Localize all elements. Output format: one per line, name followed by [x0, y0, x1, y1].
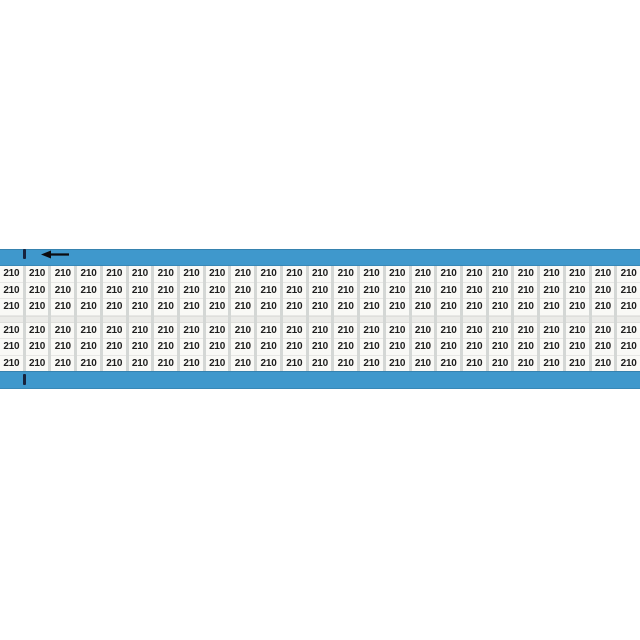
- wire-marker-label: 210: [514, 299, 537, 316]
- wire-marker-label: 210: [463, 283, 486, 300]
- marker-column: 210210210210210210: [412, 266, 435, 371]
- score-line-gap: [489, 316, 512, 323]
- tape-bottom-band: [0, 371, 640, 389]
- wire-marker-label: 210: [566, 356, 589, 372]
- wire-marker-label: 210: [489, 339, 512, 356]
- wire-marker-label: 210: [231, 283, 254, 300]
- wire-marker-label: 210: [617, 339, 640, 356]
- wire-marker-label: 210: [514, 339, 537, 356]
- marker-column: 210210210210210210: [257, 266, 280, 371]
- wire-marker-label: 210: [283, 339, 306, 356]
- marker-column: 210210210210210210: [26, 266, 49, 371]
- marker-column: 210210210210210210: [360, 266, 383, 371]
- score-line-gap: [129, 316, 152, 323]
- marker-column: 210210210210210210: [180, 266, 203, 371]
- wire-marker-label: 210: [103, 283, 126, 300]
- wire-marker-label: 210: [617, 356, 640, 372]
- wire-marker-label: 210: [283, 299, 306, 316]
- wire-marker-label: 210: [540, 283, 563, 300]
- wire-marker-label: 210: [360, 266, 383, 283]
- wire-marker-label: 210: [283, 356, 306, 372]
- score-line-gap: [231, 316, 254, 323]
- marker-column: 210210210210210210: [514, 266, 537, 371]
- wire-marker-label: 210: [231, 266, 254, 283]
- score-line-gap: [592, 316, 615, 323]
- wire-marker-label: 210: [180, 266, 203, 283]
- wire-marker-label: 210: [0, 266, 23, 283]
- registration-tick-top: [23, 249, 26, 259]
- wire-marker-label: 210: [180, 323, 203, 340]
- wire-marker-label: 210: [0, 283, 23, 300]
- wire-marker-label: 210: [386, 356, 409, 372]
- wire-marker-label: 210: [77, 299, 100, 316]
- wire-marker-label: 210: [309, 323, 332, 340]
- wire-marker-label: 210: [489, 356, 512, 372]
- marker-column: 210210210210210210: [77, 266, 100, 371]
- wire-marker-label: 210: [26, 339, 49, 356]
- wire-marker-label: 210: [489, 283, 512, 300]
- wire-marker-label: 210: [51, 339, 74, 356]
- wire-marker-label: 210: [206, 266, 229, 283]
- score-line-gap: [77, 316, 100, 323]
- wire-marker-label: 210: [412, 339, 435, 356]
- wire-marker-label: 210: [540, 323, 563, 340]
- score-line-gap: [412, 316, 435, 323]
- score-line-gap: [463, 316, 486, 323]
- wire-marker-label: 210: [103, 356, 126, 372]
- score-line-gap: [283, 316, 306, 323]
- wire-marker-label: 210: [154, 299, 177, 316]
- registration-tick-bottom: [23, 374, 26, 385]
- wire-marker-label: 210: [540, 299, 563, 316]
- marker-column: 210210210210210210: [206, 266, 229, 371]
- wire-marker-label: 210: [463, 299, 486, 316]
- wire-marker-label: 210: [309, 356, 332, 372]
- wire-marker-label: 210: [103, 266, 126, 283]
- marker-column: 210210210210210210: [129, 266, 152, 371]
- wire-marker-label: 210: [129, 323, 152, 340]
- wire-marker-label: 210: [360, 299, 383, 316]
- score-line-gap: [0, 316, 23, 323]
- wire-marker-label: 210: [489, 323, 512, 340]
- wire-marker-label: 210: [309, 283, 332, 300]
- wire-marker-label: 210: [566, 266, 589, 283]
- wire-marker-label: 210: [51, 299, 74, 316]
- score-line-gap: [437, 316, 460, 323]
- left-arrow-icon: [40, 249, 70, 260]
- wire-marker-label: 210: [26, 299, 49, 316]
- marker-column: 210210210210210210: [309, 266, 332, 371]
- wire-marker-label: 210: [463, 356, 486, 372]
- wire-marker-label: 210: [154, 283, 177, 300]
- wire-marker-label: 210: [540, 356, 563, 372]
- wire-marker-label: 210: [412, 283, 435, 300]
- marker-column: 210210210210210210: [437, 266, 460, 371]
- wire-marker-label: 210: [257, 356, 280, 372]
- wire-marker-label: 210: [334, 339, 357, 356]
- wire-marker-label: 210: [463, 266, 486, 283]
- wire-marker-label: 210: [540, 339, 563, 356]
- wire-marker-label: 210: [592, 266, 615, 283]
- wire-marker-label: 210: [592, 323, 615, 340]
- wire-marker-label: 210: [437, 283, 460, 300]
- score-line-gap: [514, 316, 537, 323]
- wire-marker-label: 210: [257, 266, 280, 283]
- wire-marker-label: 210: [334, 283, 357, 300]
- wire-marker-card: 2102102102102102102102102102102102102102…: [0, 249, 640, 389]
- wire-marker-label: 210: [283, 323, 306, 340]
- wire-marker-label: 210: [514, 323, 537, 340]
- wire-marker-label: 210: [437, 356, 460, 372]
- wire-marker-label: 210: [0, 356, 23, 372]
- wire-marker-label: 210: [334, 356, 357, 372]
- wire-marker-label: 210: [514, 266, 537, 283]
- wire-marker-label: 210: [412, 266, 435, 283]
- wire-marker-label: 210: [206, 283, 229, 300]
- wire-marker-label: 210: [51, 356, 74, 372]
- wire-marker-label: 210: [566, 323, 589, 340]
- wire-marker-label: 210: [309, 339, 332, 356]
- marker-column: 210210210210210210: [386, 266, 409, 371]
- wire-marker-label: 210: [514, 283, 537, 300]
- wire-marker-label: 210: [334, 299, 357, 316]
- score-line-gap: [334, 316, 357, 323]
- wire-marker-label: 210: [206, 323, 229, 340]
- score-line-gap: [180, 316, 203, 323]
- wire-marker-label: 210: [592, 299, 615, 316]
- marker-column: 210210210210210210: [334, 266, 357, 371]
- wire-marker-label: 210: [0, 323, 23, 340]
- wire-marker-label: 210: [0, 299, 23, 316]
- tape-top-band: [0, 249, 640, 266]
- wire-marker-label: 210: [206, 299, 229, 316]
- wire-marker-label: 210: [154, 323, 177, 340]
- marker-column: 210210210210210210: [463, 266, 486, 371]
- score-line-gap: [206, 316, 229, 323]
- wire-marker-label: 210: [437, 299, 460, 316]
- wire-marker-label: 210: [77, 283, 100, 300]
- marker-column: 210210210210210210: [617, 266, 640, 371]
- wire-marker-label: 210: [386, 299, 409, 316]
- wire-marker-label: 210: [566, 339, 589, 356]
- wire-marker-label: 210: [257, 323, 280, 340]
- wire-marker-label: 210: [180, 299, 203, 316]
- wire-marker-label: 210: [386, 283, 409, 300]
- wire-marker-label: 210: [77, 266, 100, 283]
- marker-column: 210210210210210210: [103, 266, 126, 371]
- wire-marker-label: 210: [51, 283, 74, 300]
- wire-marker-label: 210: [412, 356, 435, 372]
- wire-marker-label: 210: [154, 339, 177, 356]
- score-line-gap: [154, 316, 177, 323]
- wire-marker-label: 210: [489, 266, 512, 283]
- wire-marker-label: 210: [257, 299, 280, 316]
- score-line-gap: [386, 316, 409, 323]
- score-line-gap: [26, 316, 49, 323]
- wire-marker-label: 210: [437, 266, 460, 283]
- wire-marker-label: 210: [592, 339, 615, 356]
- wire-marker-label: 210: [514, 356, 537, 372]
- wire-marker-label: 210: [437, 323, 460, 340]
- wire-marker-label: 210: [231, 339, 254, 356]
- wire-marker-label: 210: [360, 356, 383, 372]
- wire-marker-label: 210: [257, 339, 280, 356]
- wire-marker-label: 210: [386, 323, 409, 340]
- wire-marker-label: 210: [103, 339, 126, 356]
- wire-marker-label: 210: [26, 283, 49, 300]
- wire-marker-label: 210: [617, 299, 640, 316]
- wire-marker-label: 210: [129, 266, 152, 283]
- wire-marker-label: 210: [103, 299, 126, 316]
- wire-marker-label: 210: [617, 266, 640, 283]
- wire-marker-label: 210: [617, 283, 640, 300]
- wire-marker-label: 210: [540, 266, 563, 283]
- score-line-gap: [103, 316, 126, 323]
- wire-marker-label: 210: [129, 339, 152, 356]
- wire-marker-label: 210: [360, 323, 383, 340]
- marker-column: 210210210210210210: [154, 266, 177, 371]
- wire-marker-label: 210: [592, 356, 615, 372]
- wire-marker-label: 210: [257, 283, 280, 300]
- wire-marker-label: 210: [386, 339, 409, 356]
- score-line-gap: [617, 316, 640, 323]
- wire-marker-label: 210: [309, 266, 332, 283]
- wire-marker-label: 210: [180, 283, 203, 300]
- wire-marker-label: 210: [360, 339, 383, 356]
- wire-marker-label: 210: [412, 299, 435, 316]
- wire-marker-label: 210: [489, 299, 512, 316]
- wire-marker-label: 210: [0, 339, 23, 356]
- wire-marker-label: 210: [334, 266, 357, 283]
- wire-marker-label: 210: [26, 356, 49, 372]
- wire-marker-label: 210: [231, 299, 254, 316]
- marker-column: 210210210210210210: [0, 266, 23, 371]
- wire-marker-label: 210: [77, 356, 100, 372]
- score-line-gap: [566, 316, 589, 323]
- wire-marker-label: 210: [77, 323, 100, 340]
- wire-marker-label: 210: [103, 323, 126, 340]
- score-line-gap: [309, 316, 332, 323]
- wire-marker-label: 210: [129, 283, 152, 300]
- marker-column: 210210210210210210: [592, 266, 615, 371]
- wire-marker-label: 210: [309, 299, 332, 316]
- wire-marker-label: 210: [412, 323, 435, 340]
- marker-column: 210210210210210210: [51, 266, 74, 371]
- marker-column: 210210210210210210: [283, 266, 306, 371]
- wire-marker-label: 210: [231, 323, 254, 340]
- wire-marker-label: 210: [592, 283, 615, 300]
- wire-marker-label: 210: [154, 266, 177, 283]
- wire-marker-label: 210: [334, 323, 357, 340]
- wire-marker-label: 210: [283, 266, 306, 283]
- wire-marker-label: 210: [463, 339, 486, 356]
- wire-marker-label: 210: [566, 283, 589, 300]
- wire-marker-label: 210: [386, 266, 409, 283]
- marker-column: 210210210210210210: [566, 266, 589, 371]
- wire-marker-label: 210: [129, 356, 152, 372]
- wire-marker-label: 210: [154, 356, 177, 372]
- score-line-gap: [257, 316, 280, 323]
- wire-marker-label: 210: [180, 356, 203, 372]
- wire-marker-label: 210: [617, 323, 640, 340]
- score-line-gap: [360, 316, 383, 323]
- wire-marker-label: 210: [51, 266, 74, 283]
- wire-marker-label: 210: [566, 299, 589, 316]
- marker-column: 210210210210210210: [540, 266, 563, 371]
- marker-column: 210210210210210210: [489, 266, 512, 371]
- wire-marker-label: 210: [129, 299, 152, 316]
- wire-marker-label: 210: [360, 283, 383, 300]
- wire-marker-label: 210: [180, 339, 203, 356]
- score-line-gap: [51, 316, 74, 323]
- wire-marker-label: 210: [26, 323, 49, 340]
- wire-marker-label: 210: [283, 283, 306, 300]
- marker-column: 210210210210210210: [231, 266, 254, 371]
- wire-marker-label: 210: [26, 266, 49, 283]
- marker-label-grid: 2102102102102102102102102102102102102102…: [0, 266, 640, 371]
- wire-marker-label: 210: [77, 339, 100, 356]
- wire-marker-label: 210: [206, 356, 229, 372]
- wire-marker-label: 210: [463, 323, 486, 340]
- wire-marker-label: 210: [206, 339, 229, 356]
- wire-marker-label: 210: [231, 356, 254, 372]
- score-line-gap: [540, 316, 563, 323]
- wire-marker-label: 210: [51, 323, 74, 340]
- wire-marker-label: 210: [437, 339, 460, 356]
- product-image-canvas: 2102102102102102102102102102102102102102…: [0, 0, 640, 640]
